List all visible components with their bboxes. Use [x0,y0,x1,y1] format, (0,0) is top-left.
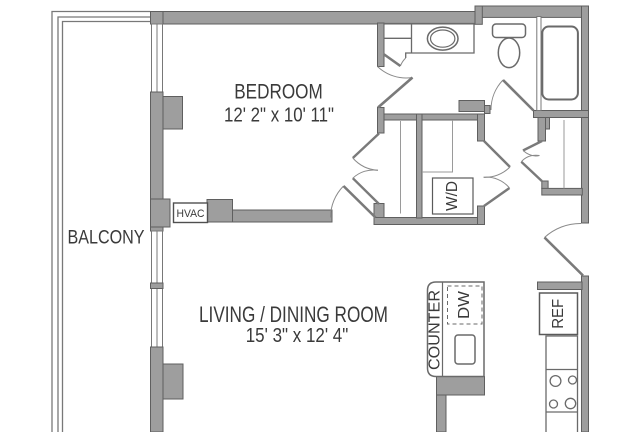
svg-text:COUNTER: COUNTER [427,290,444,370]
svg-text:W/D: W/D [444,181,461,211]
svg-text:LIVING / DINING ROOM: LIVING / DINING ROOM [199,302,388,327]
svg-text:DW: DW [456,290,473,319]
svg-text:15' 3" x 12' 4": 15' 3" x 12' 4" [246,325,349,347]
svg-text:HVAC: HVAC [177,208,205,220]
svg-text:12' 2" x 10' 11": 12' 2" x 10' 11" [224,105,334,127]
svg-text:BALCONY: BALCONY [68,228,145,249]
svg-text:BEDROOM: BEDROOM [234,81,323,104]
svg-text:REF: REF [550,299,567,329]
